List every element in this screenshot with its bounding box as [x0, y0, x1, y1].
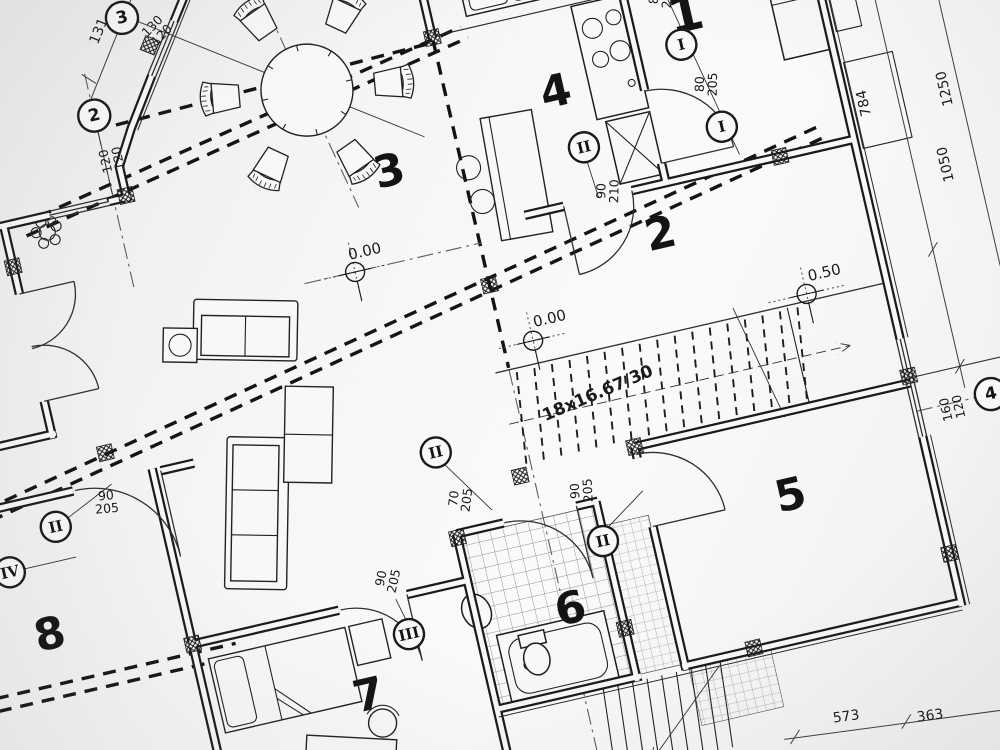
elevation-value: 0.00	[531, 306, 568, 331]
elevation-value: 0.50	[806, 260, 843, 285]
door-marker-II-bath: II	[418, 434, 454, 470]
coffee-table	[284, 386, 334, 483]
column-block	[423, 29, 441, 47]
bedroom-furniture	[208, 619, 418, 750]
living-furniture	[0, 0, 521, 628]
sofa-three-seat	[225, 437, 290, 590]
elevation-marker: 0.00	[332, 239, 391, 305]
column-block	[616, 619, 634, 637]
dim-131: 131	[87, 16, 112, 47]
dining-chair	[232, 0, 282, 44]
dining-chair	[373, 64, 415, 101]
dim-1050: 1050	[934, 145, 958, 183]
blueprint-photo: 0.00 0.00 0.50 1 2 3 4 5 6 7 8	[0, 0, 1000, 750]
staircase	[493, 273, 911, 478]
column-block	[481, 276, 499, 294]
side-table	[163, 328, 198, 363]
kitchen-sink	[455, 0, 556, 16]
dining-chair	[246, 145, 293, 195]
window-size: 120120	[95, 145, 128, 175]
column-block	[745, 639, 763, 657]
room-label-4: 4	[535, 63, 576, 120]
column-block	[900, 367, 918, 385]
door-size: 90210	[593, 179, 621, 203]
leader	[25, 557, 76, 569]
column-block	[449, 529, 467, 547]
sofa-two-seat	[193, 299, 298, 361]
window-markers: 3 130120 2 120120 4 160120	[55, 0, 1000, 597]
beam-line	[0, 27, 482, 225]
elevation-markers: 0.00 0.00 0.50	[332, 139, 851, 425]
room-label-2: 2	[640, 206, 681, 263]
dim-1250: 1250	[933, 69, 957, 107]
doors	[0, 0, 851, 731]
door-marker-II-kitchen: II	[566, 129, 602, 165]
column-block	[184, 635, 202, 653]
door-marker-II-room8: II	[38, 509, 74, 545]
door-size: 90205	[371, 565, 403, 594]
window-marker-4: 4	[972, 375, 1000, 413]
dim-363: 363	[916, 706, 945, 725]
column-block	[941, 544, 959, 562]
door-size: 80205	[692, 72, 720, 96]
room-label-7: 7	[348, 667, 389, 724]
bedside-cabinet	[349, 619, 391, 666]
door-marker-I-room1: I	[704, 109, 740, 145]
room-label-5: 5	[770, 467, 811, 524]
room-label-3: 3	[369, 143, 410, 200]
rotated-plan: 0.00 0.00 0.50 1 2 3 4 5 6 7 8	[0, 0, 1000, 750]
column-block	[511, 467, 529, 485]
floorplan-svg: 0.00 0.00 0.50 1 2 3 4 5 6 7 8	[0, 0, 1000, 750]
axis-line	[304, 243, 481, 284]
window-marker-2: 2	[75, 96, 113, 134]
stair-label: 18x16.67/30	[539, 361, 656, 426]
door-room8	[75, 471, 181, 577]
stair-top-edge	[495, 283, 887, 373]
door-size: 80205	[646, 0, 674, 8]
door-double-living	[19, 281, 98, 401]
elevation-marker: 0.00	[510, 306, 576, 374]
door-markers: I 80205 I 80205 II 90210 II 70205	[0, 0, 835, 736]
column-block	[771, 147, 789, 165]
door-size: 90205	[567, 478, 596, 503]
dim-line-bottom	[783, 662, 1000, 750]
column-block	[117, 187, 135, 205]
kitchen-island	[480, 110, 553, 241]
window-size: 160120	[936, 393, 969, 423]
window-2	[49, 198, 110, 220]
column-block	[96, 444, 114, 462]
column-block	[4, 258, 22, 276]
door-size: 70205	[445, 486, 476, 513]
dim-573: 573	[832, 707, 861, 726]
leader	[396, 598, 406, 620]
room-label-8: 8	[29, 606, 70, 663]
elevation-value: 0.00	[346, 239, 383, 264]
beam-line	[5, 37, 489, 235]
bed	[208, 627, 362, 733]
dining-chair	[320, 0, 367, 36]
window-marker-3: 3	[103, 0, 141, 37]
appliance	[606, 112, 664, 184]
dining-chair	[199, 79, 241, 116]
door-marker-IV: IV	[0, 554, 28, 590]
door-room5	[636, 438, 725, 527]
